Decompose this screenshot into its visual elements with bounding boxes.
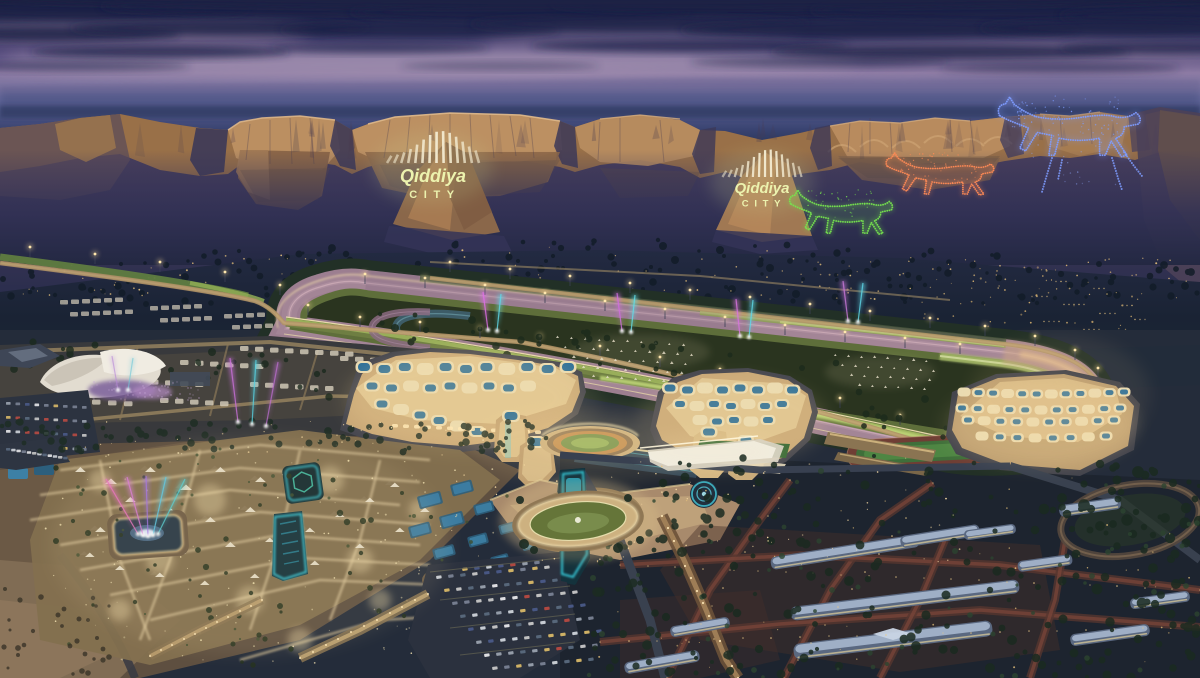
svg-text:Qiddiya: Qiddiya — [734, 180, 789, 197]
svg-text:CITY: CITY — [409, 189, 460, 201]
svg-text:Qiddiya: Qiddiya — [400, 166, 466, 186]
svg-text:CITY: CITY — [742, 199, 786, 210]
